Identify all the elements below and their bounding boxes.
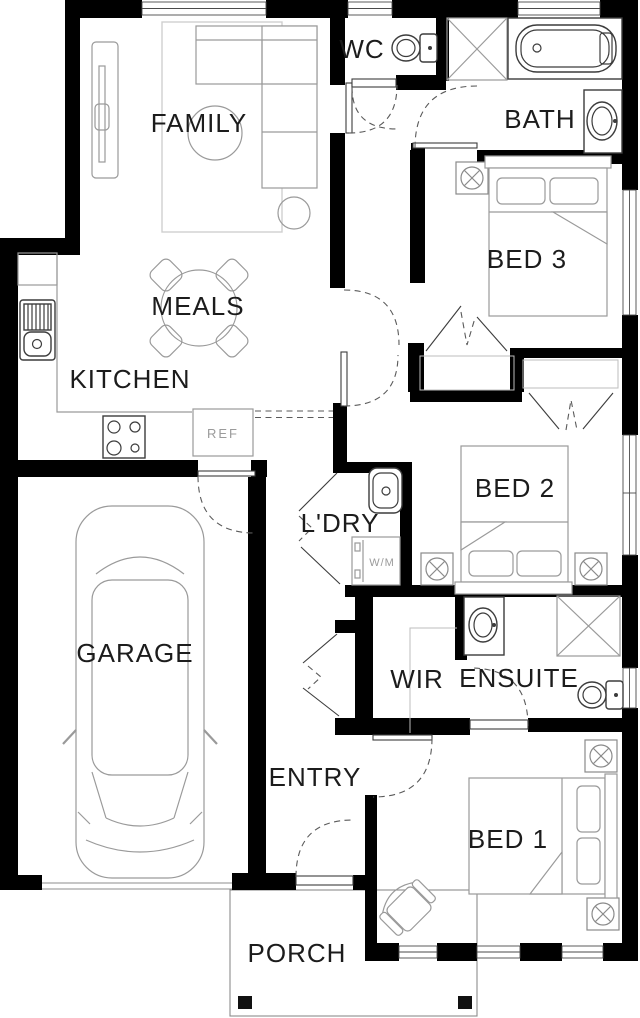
- room-label-bed1: BED 1: [468, 824, 548, 854]
- sofa: [196, 26, 317, 188]
- room-label-porch: PORCH: [248, 938, 347, 968]
- room-label-bed3: BED 3: [487, 244, 567, 274]
- door-leaf: [413, 143, 477, 148]
- window-bath: [518, 2, 600, 15]
- robe-shelf: [523, 360, 618, 388]
- door-leaf: [373, 735, 432, 740]
- window-bed1-a: [399, 946, 437, 958]
- bathtub: [508, 18, 622, 79]
- chair: [214, 257, 251, 294]
- washing-machine-label: W/M: [369, 557, 395, 569]
- window-wc: [348, 2, 392, 15]
- chair: [214, 323, 251, 360]
- armchair: [374, 874, 440, 940]
- window-bed3: [623, 190, 636, 315]
- ensuite-shower: [557, 596, 620, 656]
- fridge-label: REF: [207, 426, 239, 441]
- room-label-kitchen: KITCHEN: [69, 364, 190, 394]
- pantry: [18, 253, 57, 285]
- room-label-ensuite: ENSUITE: [459, 663, 579, 693]
- tv-unit: [92, 42, 118, 178]
- car: [63, 506, 217, 878]
- room-label-laundry: L'DRY: [301, 508, 380, 538]
- window-ensuite: [623, 668, 636, 708]
- window-family: [142, 2, 266, 15]
- ceiling-light-icon: [456, 162, 488, 194]
- bed: [455, 446, 572, 594]
- window-bed1-b: [477, 946, 520, 958]
- room-label-entry: ENTRY: [269, 762, 362, 792]
- robe-doors-bed2: [529, 393, 613, 430]
- room-label-wir: WIR: [390, 664, 444, 694]
- porch-post: [238, 996, 252, 1009]
- bifold-doors-linen: [303, 634, 339, 716]
- wc-fixtures: [392, 34, 437, 62]
- room-label-garage: GARAGE: [76, 638, 193, 668]
- window-bed1-c: [562, 946, 603, 958]
- bath-vanity: [584, 90, 622, 153]
- cooktop: [103, 416, 145, 458]
- room-label-bath: BATH: [504, 104, 575, 134]
- ceiling-light-icon: [585, 740, 617, 772]
- robe-shelf: [420, 356, 514, 390]
- shower: [447, 18, 507, 80]
- toilet-icon: [392, 34, 437, 62]
- front-door-sill: [296, 876, 353, 885]
- floor-plan-canvas: W/M: [0, 0, 640, 1018]
- bedside-lamp-icon: [421, 553, 453, 585]
- kitchen-sink: [20, 300, 55, 360]
- porch-post: [458, 996, 472, 1009]
- window-bed2: [623, 435, 636, 555]
- room-label-family: FAMILY: [151, 108, 248, 138]
- door-sill: [470, 720, 528, 729]
- room-label-wc: WC: [339, 34, 384, 64]
- room-label-meals: MEALS: [151, 291, 244, 321]
- side-table: [278, 197, 310, 229]
- chair: [148, 257, 185, 294]
- laundry-tub: [369, 468, 402, 513]
- garage-door: [42, 883, 232, 889]
- washing-machine: W/M: [352, 537, 400, 585]
- floor-plan: W/M: [0, 0, 640, 1018]
- door-leaf: [346, 83, 352, 133]
- door-leaf: [341, 352, 347, 406]
- bedside-lamp-icon: [575, 553, 607, 585]
- room-label-bed2: BED 2: [475, 473, 555, 503]
- toilet-icon: [578, 681, 623, 709]
- bed: [485, 156, 611, 316]
- chair: [148, 323, 185, 360]
- ensuite-vanity: [464, 597, 504, 655]
- door-sill: [352, 79, 396, 87]
- ceiling-light-icon: [587, 898, 619, 930]
- door-leaf: [198, 471, 255, 476]
